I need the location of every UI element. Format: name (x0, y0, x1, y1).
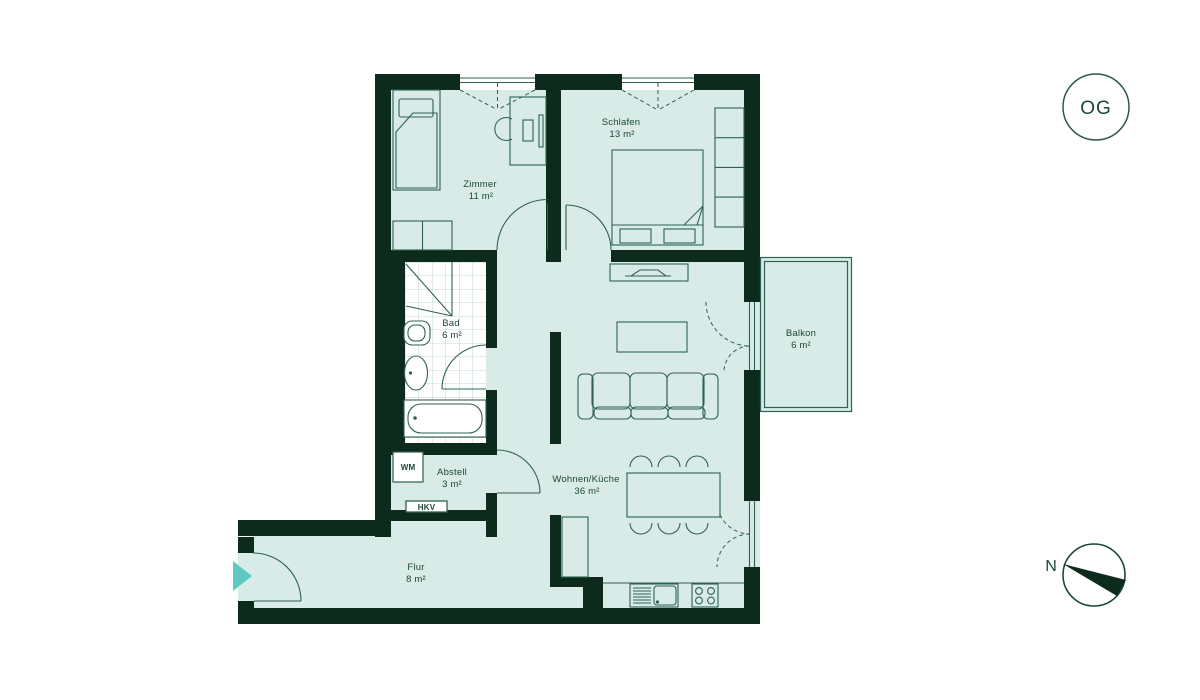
north-compass: N (1045, 544, 1126, 606)
bathroom-sink (405, 356, 428, 390)
floor-badge: OG (1063, 74, 1129, 140)
svg-text:Schlafen: Schlafen (602, 117, 641, 128)
bathtub (404, 400, 486, 437)
svg-text:13 m²: 13 m² (609, 129, 634, 140)
washing-machine-label: WM (401, 463, 416, 472)
hkv-label: HKV (418, 503, 436, 512)
compass-needle (1063, 564, 1126, 596)
svg-text:Zimmer: Zimmer (463, 179, 496, 190)
north-label: N (1045, 558, 1057, 575)
svg-text:Bad: Bad (442, 318, 460, 329)
floor-plan-page: WM HKV (0, 0, 1200, 700)
svg-text:Flur: Flur (407, 562, 424, 573)
dining-table (627, 473, 720, 517)
svg-text:Abstell: Abstell (437, 467, 467, 478)
svg-text:3 m²: 3 m² (442, 479, 462, 490)
svg-text:6 m²: 6 m² (791, 340, 811, 351)
svg-text:8 m²: 8 m² (406, 574, 426, 585)
floor-plan-canvas: WM HKV (0, 0, 1200, 700)
label-zimmer: Zimmer 11 m² (463, 179, 496, 202)
svg-text:OG: OG (1080, 98, 1112, 119)
svg-text:11 m²: 11 m² (469, 191, 494, 202)
toilet (404, 321, 430, 345)
svg-text:6 m²: 6 m² (442, 330, 462, 341)
label-bad: Bad 6 m² (442, 318, 462, 341)
svg-text:Wohnen/Küche: Wohnen/Küche (552, 474, 619, 485)
svg-text:Balkon: Balkon (786, 328, 816, 339)
svg-text:36 m²: 36 m² (574, 486, 599, 497)
label-flur: Flur 8 m² (406, 562, 426, 585)
